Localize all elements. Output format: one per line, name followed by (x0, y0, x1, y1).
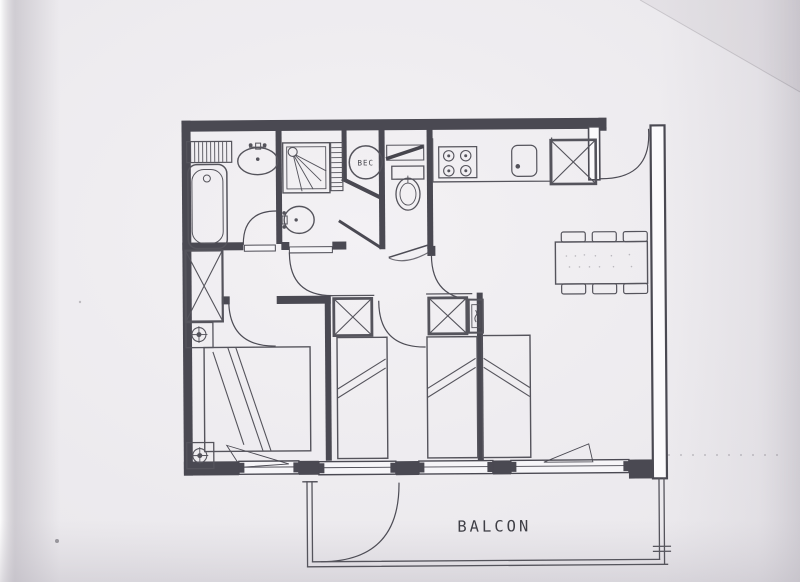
wall-shower-south (281, 242, 289, 250)
floor-plan: BEC (0, 0, 800, 582)
window-bedroom2-balcony-door (319, 461, 396, 475)
right-edge-shadow (660, 0, 800, 582)
ink-speck (55, 539, 59, 543)
ink-speck (79, 301, 81, 303)
bottom-edge-shadow (0, 520, 800, 582)
wall-bedroom1-north (277, 296, 331, 304)
wall-bottom-pier (493, 460, 511, 474)
wall-wc-west (379, 129, 386, 249)
wall-bathroom-shower (276, 130, 283, 244)
wall-shower-south (332, 242, 346, 250)
left-crease-shadow (0, 0, 60, 582)
wall-bedroom1-bedroom2 (325, 296, 332, 461)
balcony-label: BALCON (457, 517, 531, 536)
scanned-floor-plan-document: BEC (0, 0, 800, 582)
paper-background (0, 0, 800, 582)
water-heater-label: BEC (357, 158, 374, 167)
wall-bottom-pier (299, 461, 319, 475)
wall-right (651, 125, 667, 478)
wall-bottom-pier (396, 461, 419, 475)
window-bedroom2b (419, 461, 493, 475)
